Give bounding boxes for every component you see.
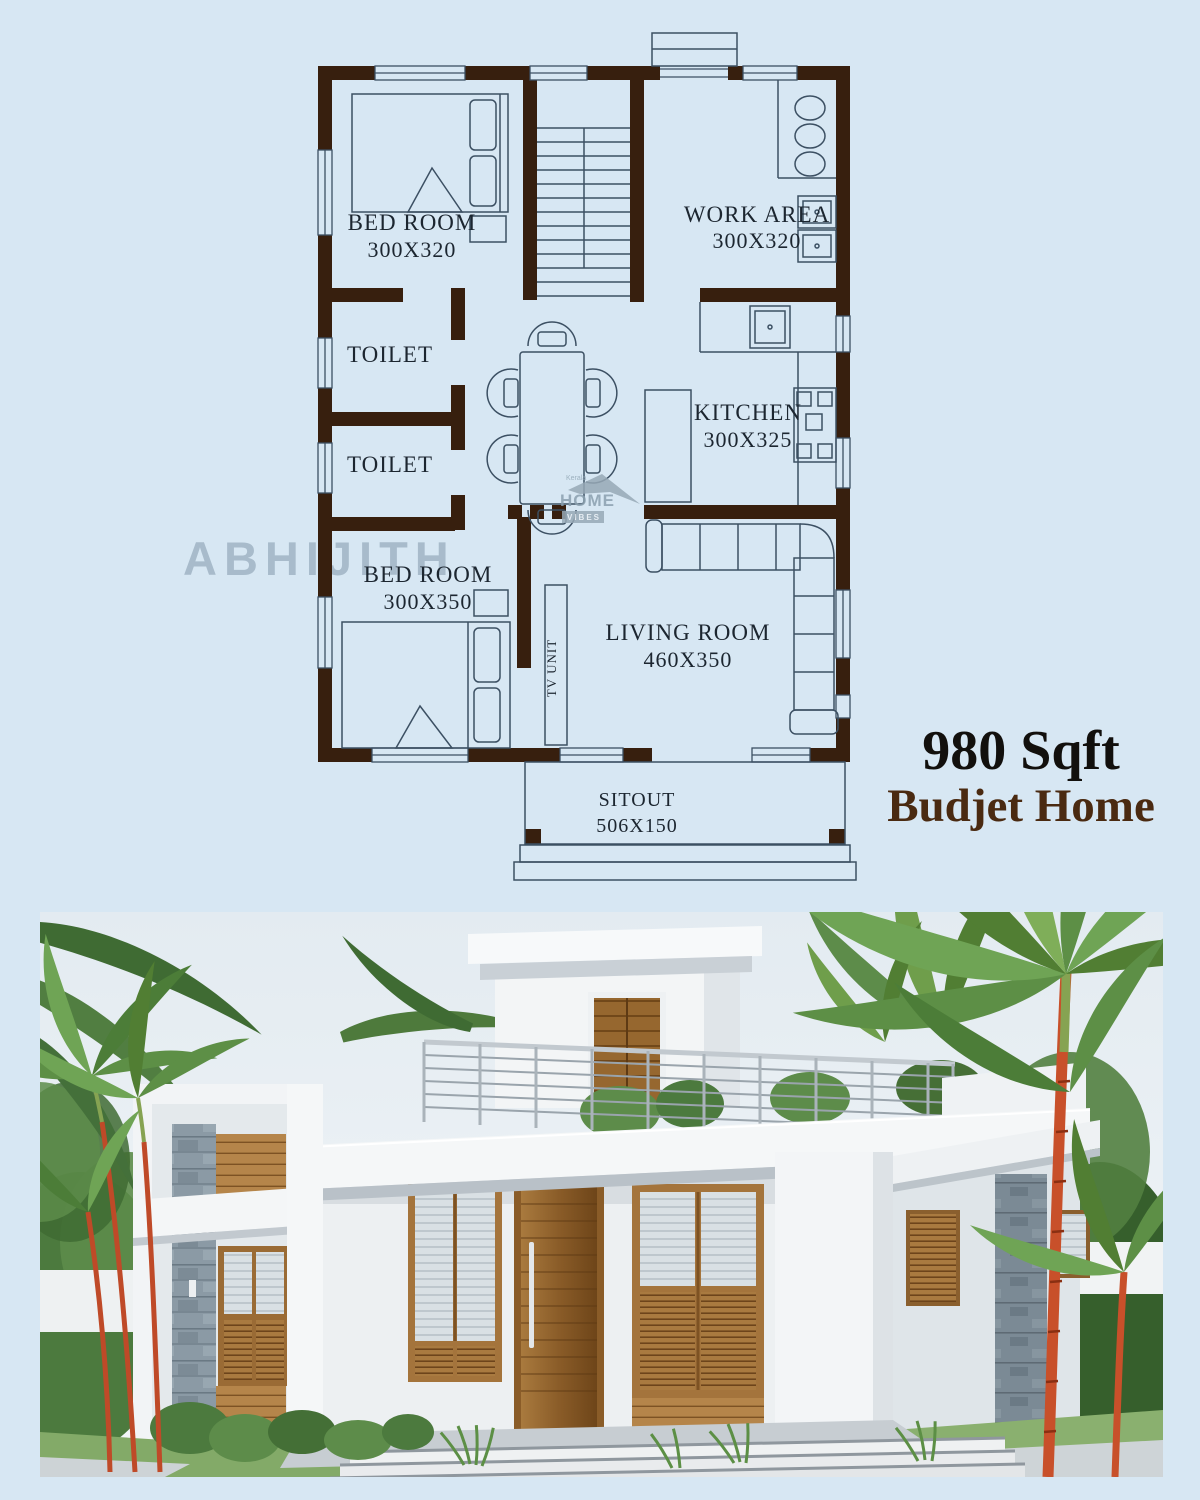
- room-size: 506X150: [596, 815, 677, 837]
- tv-unit-label: TV UNIT: [544, 639, 559, 697]
- room-label: LIVING ROOM: [606, 620, 771, 645]
- room-label: BED ROOM: [364, 562, 493, 587]
- room-size: 300X320: [368, 237, 457, 262]
- title-text: Budjet Home: [856, 781, 1186, 833]
- house-photo: [40, 912, 1163, 1477]
- logo-main-text: HOME: [560, 491, 615, 510]
- side-wall: [893, 1120, 1100, 1442]
- door-handle: [529, 1242, 534, 1348]
- area-text: 980 Sqft: [856, 722, 1186, 781]
- brand-logo: Kerala HOME VIBES: [550, 466, 646, 533]
- left-wing: [133, 1084, 323, 1446]
- room-label: BED ROOM: [348, 210, 477, 235]
- caption-block: 980 Sqft Budjet Home: [856, 722, 1186, 832]
- stairs-icon: [537, 128, 630, 296]
- fridge-icon: [645, 390, 691, 502]
- glass-window: [408, 1184, 502, 1382]
- front-door: [514, 1180, 604, 1432]
- room-size: 300X350: [384, 589, 473, 614]
- side-louver-window: [908, 1212, 958, 1304]
- room-size: 460X350: [644, 647, 733, 672]
- shutter-window: [218, 1246, 290, 1386]
- louver-window: [632, 1184, 764, 1434]
- work-area-stove-icon: [778, 80, 836, 178]
- poster-canvas: ABHIJITH: [0, 0, 1200, 1500]
- sitout-outline: [514, 762, 856, 880]
- room-label: SITOUT: [599, 789, 676, 811]
- wing-column: [287, 1084, 323, 1446]
- room-label: TOILET: [347, 452, 433, 477]
- logo-top-text: Kerala: [566, 475, 586, 482]
- corner-pillar: [775, 1152, 893, 1464]
- logo-sub-text: VIBES: [567, 513, 601, 522]
- room-size: 300X320: [713, 228, 802, 253]
- room-label: KITCHEN: [694, 400, 802, 425]
- room-size: 300X325: [704, 427, 793, 452]
- side-stone-strip: [995, 1174, 1047, 1436]
- room-label: WORK AREA: [684, 202, 830, 227]
- room-label: TOILET: [347, 342, 433, 367]
- wall-lamp-icon: [189, 1280, 196, 1297]
- kitchen-sink-icon: [750, 306, 790, 348]
